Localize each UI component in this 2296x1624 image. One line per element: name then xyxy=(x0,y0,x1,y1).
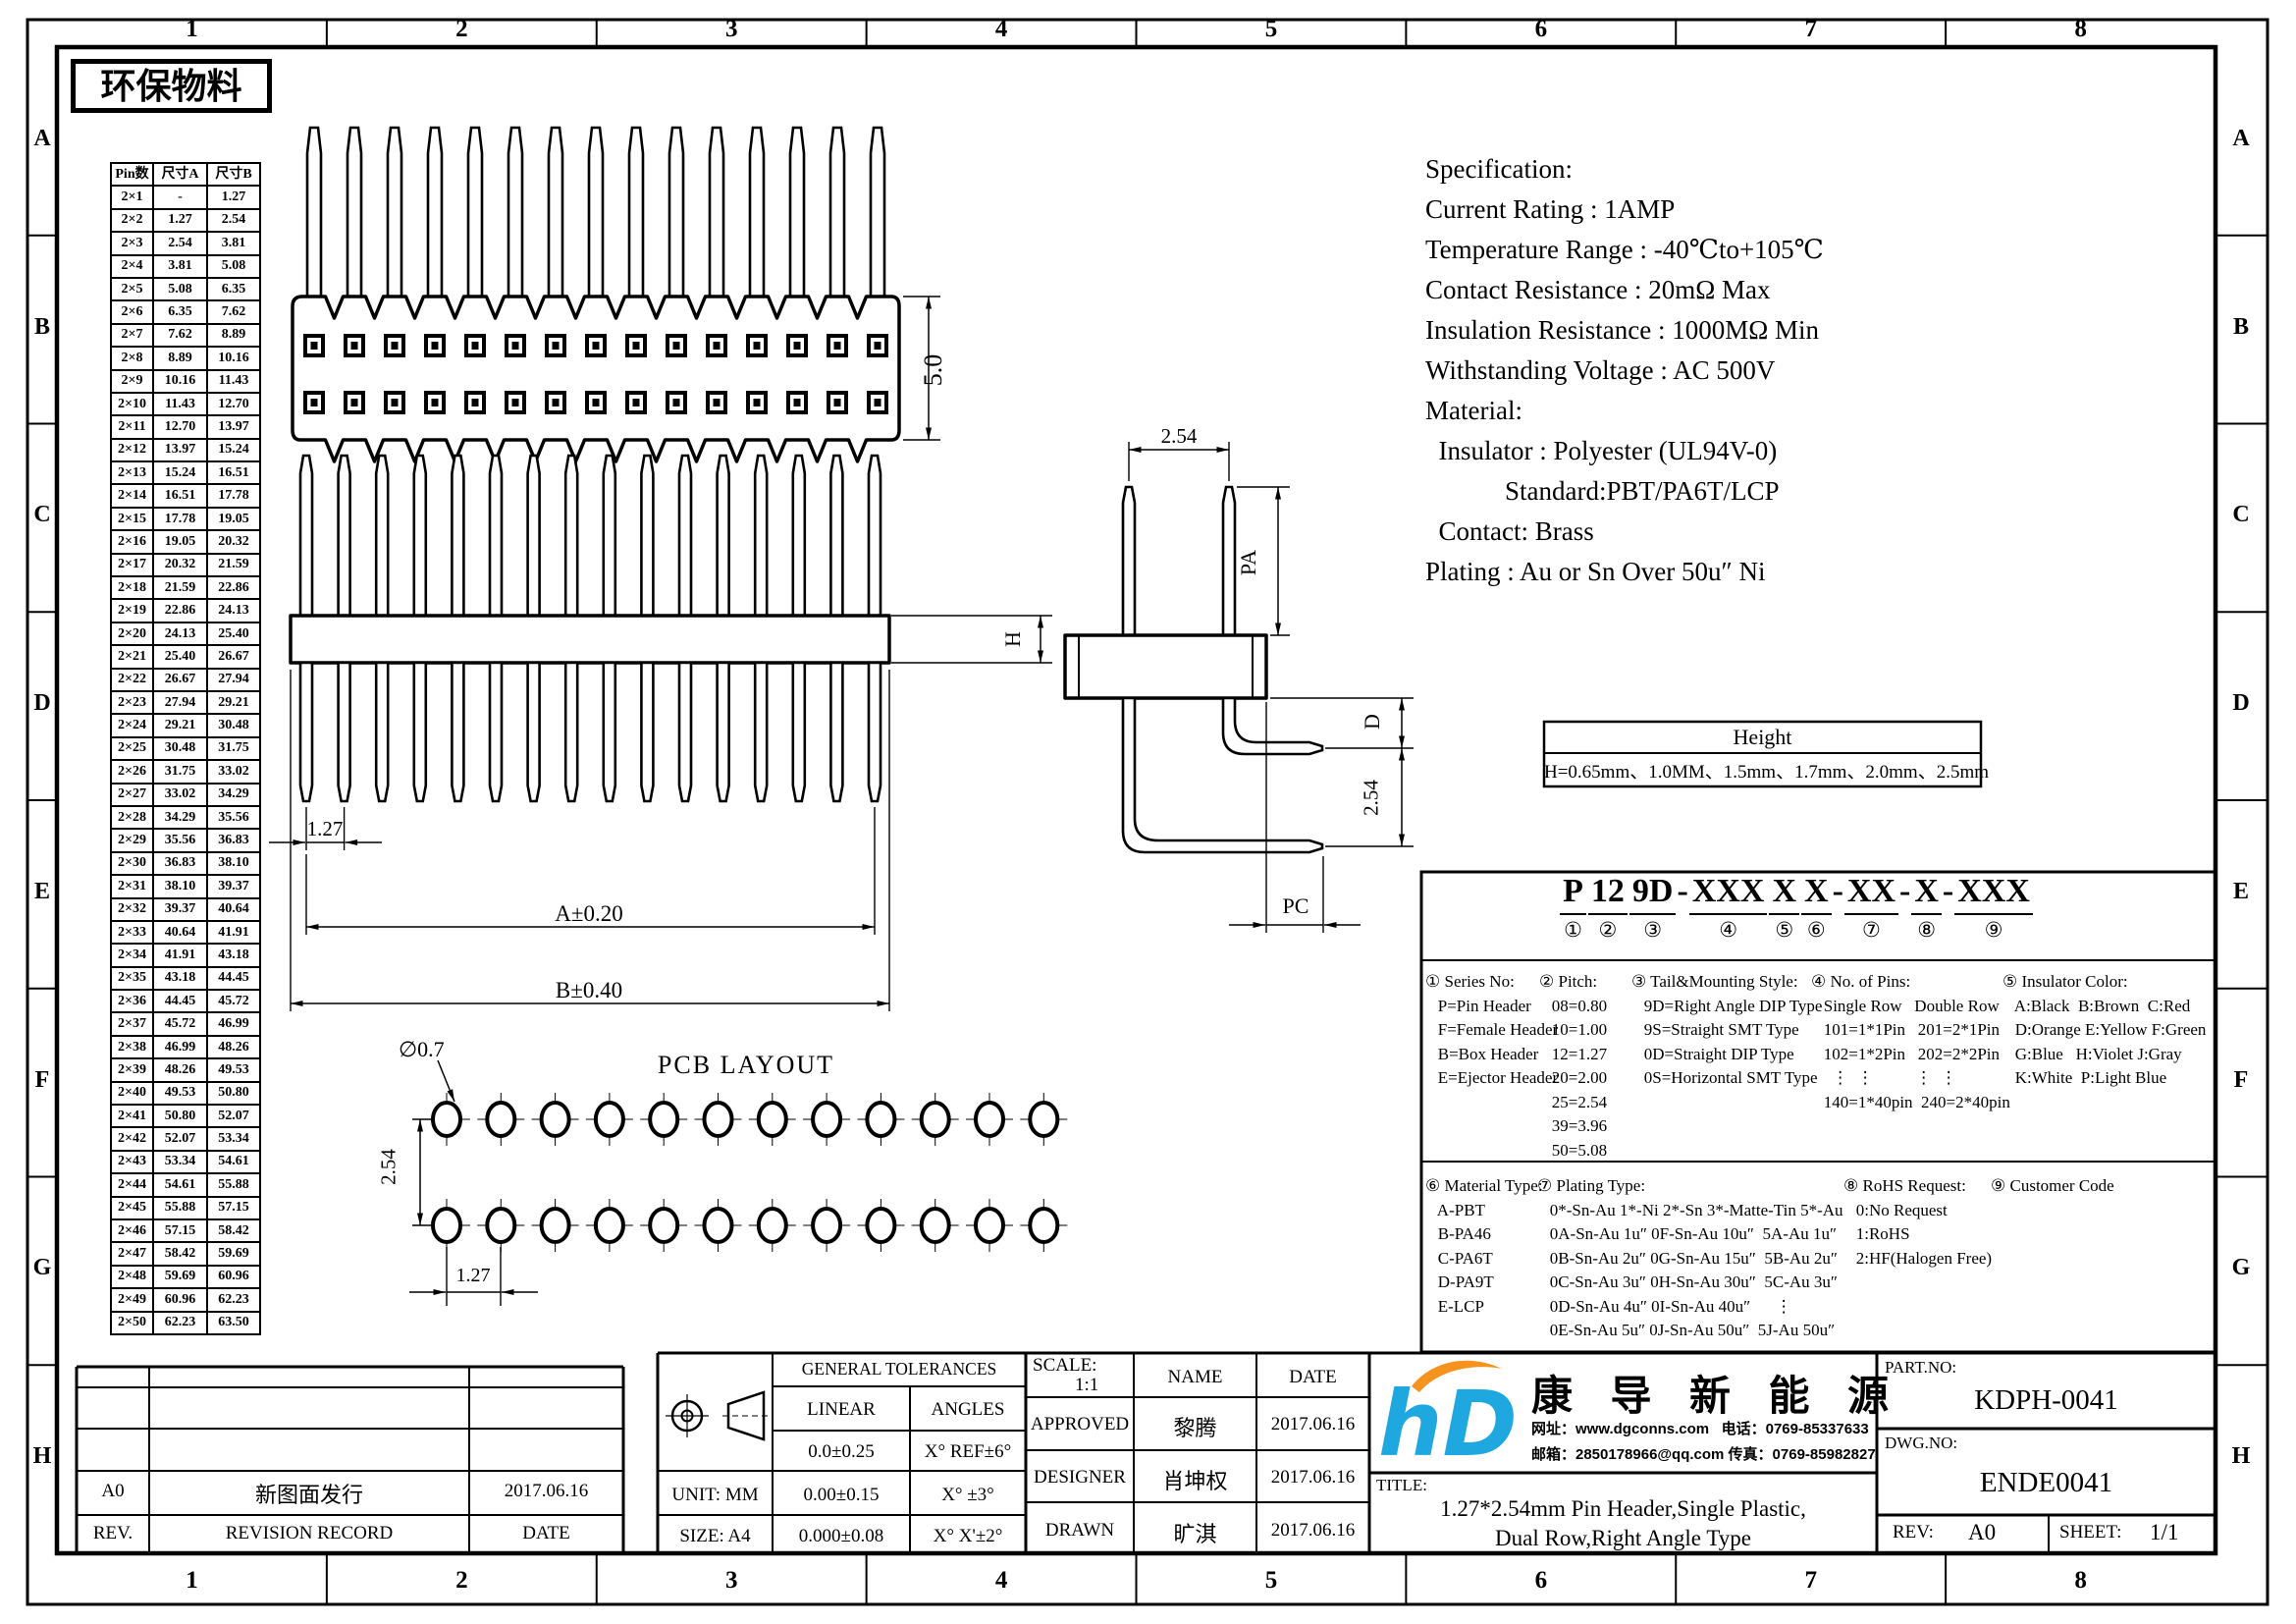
grid-row-label-right: H xyxy=(2220,1443,2262,1470)
angle-tol-3: X° X'±2° xyxy=(910,1526,1026,1547)
pcb-hole xyxy=(650,1103,677,1136)
pin-table-row: 2×4049.5350.80 xyxy=(111,1082,260,1105)
pin-table-cell: 2×45 xyxy=(111,1197,153,1219)
linear-tol-1: 0.0±0.25 xyxy=(773,1441,910,1463)
contact-hole-inner xyxy=(392,399,399,406)
company-contact-line1: 网址：www.dgconns.com 电话：0769-85337633 xyxy=(1531,1418,1869,1438)
part-number-segment: 12② xyxy=(1588,870,1628,942)
pcb-hole xyxy=(759,1103,786,1136)
pin-table-cell: 2×37 xyxy=(111,1012,153,1035)
grid-col-label-top: 1 xyxy=(162,16,221,43)
pin-table-row: 2×4555.8857.15 xyxy=(111,1197,260,1219)
pin-table-row: 2×2327.9429.21 xyxy=(111,691,260,714)
grid-col-label-bottom: 6 xyxy=(1512,1567,1571,1595)
grid-row-label-left: F xyxy=(29,1067,55,1094)
part-number-segment-index: ① xyxy=(1564,918,1582,942)
pin-table-cell: 3.81 xyxy=(207,232,260,254)
pin-table-cell: 2×42 xyxy=(111,1127,153,1150)
dwg-no-label: DWG.NO: xyxy=(1885,1434,1957,1453)
pin-table-cell: 2×34 xyxy=(111,944,153,966)
pcb-hole xyxy=(487,1103,514,1136)
angles-header: ANGLES xyxy=(910,1399,1026,1421)
pin-table-row: 2×2834.2935.56 xyxy=(111,806,260,829)
pin-table-row: 2×1315.2416.51 xyxy=(111,461,260,484)
pin-table-row: 2×3948.2649.53 xyxy=(111,1058,260,1081)
pin-table-cell: 48.26 xyxy=(153,1058,207,1081)
pin-table-cell: 8.89 xyxy=(207,324,260,347)
pin-table-cell: 38.10 xyxy=(153,875,207,897)
grid-row-label-right: G xyxy=(2220,1255,2262,1281)
grid-row-label-right: C xyxy=(2220,502,2262,528)
dim-a-label: A±0.20 xyxy=(520,901,658,927)
pitch-label: 1.27 xyxy=(291,817,359,841)
pin-table-cell: 13.97 xyxy=(153,439,207,461)
pin-table-cell: 41.91 xyxy=(153,944,207,966)
pin-table-header: Pin数 xyxy=(111,163,153,186)
pin-table-header-row: Pin数尺寸A尺寸B xyxy=(111,163,260,186)
contact-hole-inner xyxy=(472,399,479,406)
pin-table-cell: 53.34 xyxy=(207,1127,260,1150)
part-no-value: KDPH-0041 xyxy=(1877,1384,2216,1417)
engineering-drawing-sheet: 环保物料 Pin数尺寸A尺寸B 2×1-1.272×21.272.542×32.… xyxy=(0,0,2296,1624)
front-pin xyxy=(307,128,321,298)
pin-table-cell: 6.35 xyxy=(207,278,260,300)
pin-table-cell: 62.23 xyxy=(207,1288,260,1311)
pin-table-row: 2×1619.0520.32 xyxy=(111,530,260,553)
pin-table-cell: 12.70 xyxy=(207,393,260,415)
pin-table-row: 2×4353.3454.61 xyxy=(111,1151,260,1173)
pin-table-cell: 2×41 xyxy=(111,1105,153,1127)
pin-table-cell: 11.43 xyxy=(207,370,260,393)
company-contact-line2: 邮箱：2850178966@qq.com 传真：0769-85982827 xyxy=(1531,1443,1876,1464)
side-top-pin xyxy=(414,456,426,618)
pin-table-cell: 38.10 xyxy=(207,852,260,875)
contact-hole-inner xyxy=(875,399,881,406)
pin-table-row: 2×2631.7533.02 xyxy=(111,760,260,783)
side-top-pin xyxy=(869,456,881,618)
rev-label: REV: xyxy=(1893,1522,1934,1543)
pin-table-row: 2×1720.3221.59 xyxy=(111,554,260,576)
pin-table-cell: 57.15 xyxy=(153,1219,207,1242)
pin-table-cell: 2×2 xyxy=(111,209,153,232)
pin-table-cell: 35.56 xyxy=(153,829,207,851)
side-bottom-pin xyxy=(528,663,540,801)
pin-table-row: 2×3745.7246.99 xyxy=(111,1012,260,1035)
pcb-hole xyxy=(650,1209,677,1242)
side-bottom-pin xyxy=(755,663,767,801)
part-number-segment-text: XX xyxy=(1844,870,1898,915)
side-view-top-pins xyxy=(300,456,881,618)
pin-table-cell: 2.54 xyxy=(207,209,260,232)
grid-row-label-left: H xyxy=(29,1443,55,1470)
drawing-title-line1: 1.27*2.54mm Pin Header,Single Plastic, xyxy=(1369,1496,1877,1522)
pin-table-cell: 34.29 xyxy=(207,784,260,806)
grid-col-label-top: 5 xyxy=(1242,16,1301,43)
front-view-body xyxy=(293,297,899,461)
pin-table-cell: 2×39 xyxy=(111,1058,153,1081)
sheet-label: SHEET: xyxy=(2059,1522,2121,1543)
grid-row-label-left: G xyxy=(29,1255,55,1281)
pin-table-cell: 17.78 xyxy=(153,508,207,530)
ordering-series: ① Series No: P=Pin Header F=Female Heade… xyxy=(1425,970,1558,1091)
pin-table-cell: 58.42 xyxy=(207,1219,260,1242)
contact-hole-inner xyxy=(714,342,721,350)
pcb-hole xyxy=(433,1209,460,1242)
pin-table-cell: 2×8 xyxy=(111,347,153,369)
angle-right-pin xyxy=(1223,487,1235,635)
pin-table-cell: 2×35 xyxy=(111,967,153,990)
pin-table-header: 尺寸A xyxy=(153,163,207,186)
pin-table-row: 2×3441.9143.18 xyxy=(111,944,260,966)
contact-hole-inner xyxy=(311,342,318,350)
contact-hole-inner xyxy=(673,399,680,406)
grid-col-label-top: 8 xyxy=(2052,16,2110,43)
grid-col-label-bottom: 8 xyxy=(2052,1567,2110,1595)
pin-table-row: 2×3239.3740.64 xyxy=(111,898,260,921)
part-number-segment-text: XXX xyxy=(1689,870,1768,915)
pin-table-row: 2×4657.1558.42 xyxy=(111,1219,260,1242)
pa-label: PA xyxy=(1236,533,1261,592)
pin-table-cell: 16.51 xyxy=(207,461,260,484)
side-bottom-pin xyxy=(339,663,350,801)
side-top-pin xyxy=(679,456,691,618)
grid-row-label-right: F xyxy=(2220,1067,2262,1094)
pcb-hole xyxy=(487,1209,514,1242)
general-tolerances-title: GENERAL TOLERANCES xyxy=(773,1359,1026,1380)
contact-hole-inner xyxy=(432,342,439,350)
pin-table-cell: 2×17 xyxy=(111,554,153,576)
side-bottom-pin xyxy=(679,663,691,801)
part-number-segment-index: ⑥ xyxy=(1807,918,1826,942)
pin-table-cell: 8.89 xyxy=(153,347,207,369)
linear-tol-2: 0.00±0.15 xyxy=(773,1485,910,1506)
row-space-label: 2.54 xyxy=(1360,764,1384,833)
pcb-hole xyxy=(976,1103,1003,1136)
pcb-hole xyxy=(542,1209,569,1242)
pin-table-cell: 54.61 xyxy=(153,1173,207,1196)
pin-table-cell: 2×3 xyxy=(111,232,153,254)
pin-table-row: 2×3543.1844.45 xyxy=(111,967,260,990)
pin-table-row: 2×66.357.62 xyxy=(111,300,260,323)
part-number-segment-index: ③ xyxy=(1643,918,1662,942)
pin-table-row: 2×21.272.54 xyxy=(111,209,260,232)
side-bottom-pin xyxy=(604,663,615,801)
ordering-pin-count: ④ No. of Pins: Single Row Double Row 101… xyxy=(1811,970,2010,1114)
pcb-hole xyxy=(596,1103,623,1136)
part-number-segment-index: ⑧ xyxy=(1917,918,1936,942)
front-pin xyxy=(710,128,723,298)
contact-hole-inner xyxy=(553,342,560,350)
pin-table-cell: 3.81 xyxy=(153,255,207,278)
pin-table-row: 2×32.543.81 xyxy=(111,232,260,254)
side-top-pin xyxy=(604,456,615,618)
pcb-layout-holes xyxy=(423,1093,1067,1252)
grid-row-label-left: C xyxy=(29,502,55,528)
linear-header: LINEAR xyxy=(773,1399,910,1421)
part-number-segment-text: 9D xyxy=(1629,870,1677,915)
side-top-pin xyxy=(641,456,653,618)
pin-table-cell: - xyxy=(153,186,207,208)
pin-table-cell: 29.21 xyxy=(207,691,260,714)
pin-table-cell: 15.24 xyxy=(153,461,207,484)
pin-table-row: 2×2733.0234.29 xyxy=(111,784,260,806)
side-bottom-pin xyxy=(869,663,881,801)
scale-value: 1:1 xyxy=(1075,1375,1098,1396)
designer-date: 2017.06.16 xyxy=(1256,1467,1369,1489)
pin-table-row: 2×2226.6727.94 xyxy=(111,669,260,691)
approved-label: APPROVED xyxy=(1026,1414,1134,1435)
drawn-date: 2017.06.16 xyxy=(1256,1520,1369,1542)
pin-table-cell: 41.91 xyxy=(207,921,260,944)
pin-table-cell: 48.26 xyxy=(207,1036,260,1058)
side-bottom-pin xyxy=(718,663,729,801)
pin-table-cell: 22.86 xyxy=(153,599,207,622)
contact-hole-inner xyxy=(432,399,439,406)
pin-table-cell: 40.64 xyxy=(153,921,207,944)
pcb-hole xyxy=(759,1209,786,1242)
pin-table-cell: 2×40 xyxy=(111,1082,153,1105)
contact-hole-inner xyxy=(875,342,881,350)
pin-table-cell: 2×47 xyxy=(111,1242,153,1265)
part-number-segment-index: ⑦ xyxy=(1862,918,1881,942)
grid-row-label-left: D xyxy=(29,690,55,717)
pin-table-cell: 2×12 xyxy=(111,439,153,461)
pin-table-cell: 40.64 xyxy=(207,898,260,921)
angle-left-pin xyxy=(1123,487,1135,635)
pin-table-cell: 30.48 xyxy=(207,714,260,736)
pcb-row-pitch-label: 2.54 xyxy=(377,1138,401,1197)
pin-table-cell: 2×7 xyxy=(111,324,153,347)
pin-table-cell: 2×25 xyxy=(111,737,153,760)
front-pin xyxy=(428,128,442,298)
side-bottom-pin xyxy=(376,663,388,801)
side-bottom-pin xyxy=(300,663,312,801)
sheet-value: 1/1 xyxy=(2150,1520,2178,1545)
pcb-hole xyxy=(1030,1103,1057,1136)
ordering-customer-code: ⑨ Customer Code xyxy=(1991,1174,2114,1199)
approved-name: 黎腾 xyxy=(1134,1411,1256,1442)
pin-table-row: 2×3644.4545.72 xyxy=(111,990,260,1012)
pin-table-cell: 2×5 xyxy=(111,278,153,300)
ordering-tail-style: ③ Tail&Mounting Style: 9D=Right Angle DI… xyxy=(1631,970,1822,1091)
pin-table-cell: 20.32 xyxy=(207,530,260,553)
part-number-segment-index: ② xyxy=(1598,918,1617,942)
side-bottom-pin xyxy=(414,663,426,801)
pcb-hole xyxy=(433,1103,460,1136)
pin-table-cell: 12.70 xyxy=(153,415,207,438)
unit-label: UNIT: MM xyxy=(658,1485,773,1506)
pin-table-cell: 35.56 xyxy=(207,806,260,829)
d-label: D xyxy=(1360,692,1385,751)
contact-hole-inner xyxy=(351,399,358,406)
pin-table-cell: 2×13 xyxy=(111,461,153,484)
pin-table-cell: 49.53 xyxy=(207,1058,260,1081)
company-logo: hD xyxy=(1372,1357,1529,1469)
ordering-rohs: ⑧ RoHS Request: 0:No Request 1:RoHS 2:HF… xyxy=(1843,1174,1992,1271)
rev-value: A0 xyxy=(1968,1520,1996,1545)
scale-label: SCALE: xyxy=(1033,1355,1096,1377)
revision-date: 2017.06.16 xyxy=(469,1481,623,1502)
pin-table-cell: 15.24 xyxy=(207,439,260,461)
front-pin xyxy=(871,128,884,298)
front-pin xyxy=(468,128,482,298)
grid-col-label-bottom: 1 xyxy=(162,1567,221,1595)
pin-table-cell: 31.75 xyxy=(207,737,260,760)
contact-hole-inner xyxy=(593,399,600,406)
pin-table-row: 2×1213.9715.24 xyxy=(111,439,260,461)
pin-table-cell: 49.53 xyxy=(153,1082,207,1105)
side-top-pin xyxy=(793,456,805,618)
pcb-hole xyxy=(596,1209,623,1242)
top-pitch-label: 2.54 xyxy=(1145,424,1213,449)
side-bottom-pin xyxy=(793,663,805,801)
pin-table-row: 2×4859.6960.96 xyxy=(111,1266,260,1288)
pin-table-cell: 20.32 xyxy=(153,554,207,576)
pin-table-cell: 27.94 xyxy=(153,691,207,714)
pin-table-row: 2×1416.5117.78 xyxy=(111,484,260,507)
pin-table-cell: 2×48 xyxy=(111,1266,153,1288)
pin-table-cell: 5.08 xyxy=(153,278,207,300)
side-top-pin xyxy=(339,456,350,618)
grid-row-label-right: B xyxy=(2220,314,2262,341)
pin-table-cell: 2×36 xyxy=(111,990,153,1012)
pin-table-cell: 2×4 xyxy=(111,255,153,278)
date-column-label: DATE xyxy=(469,1523,623,1544)
pin-table-cell: 16.51 xyxy=(153,484,207,507)
pin-table-cell: 6.35 xyxy=(153,300,207,323)
pin-table-row: 2×1517.7819.05 xyxy=(111,508,260,530)
pin-table-cell: 26.67 xyxy=(153,669,207,691)
pin-table-cell: 2×29 xyxy=(111,829,153,851)
pin-table-cell: 24.13 xyxy=(207,599,260,622)
pin-table-cell: 2×31 xyxy=(111,875,153,897)
pcb-hole xyxy=(922,1209,949,1242)
pin-table-cell: 21.59 xyxy=(207,554,260,576)
grid-row-label-left: A xyxy=(29,126,55,152)
pin-dimension-table: Pin数尺寸A尺寸B 2×1-1.272×21.272.542×32.543.8… xyxy=(110,162,261,1335)
name-header: NAME xyxy=(1134,1367,1256,1388)
company-name: 康 导 新 能 源 xyxy=(1531,1363,1902,1423)
pin-table-cell: 10.16 xyxy=(153,370,207,393)
pin-table-cell: 44.45 xyxy=(207,967,260,990)
part-number-code: P① 12② 9D③-XXX④ X⑤ X⑥-XX⑦-X⑧-XXX⑨ xyxy=(1571,870,2022,942)
approved-date: 2017.06.16 xyxy=(1256,1414,1369,1435)
revision-record-label: REVISION RECORD xyxy=(149,1523,469,1544)
part-number-segment: XXX④ xyxy=(1689,870,1768,942)
pin-table-cell: 25.40 xyxy=(153,645,207,668)
angle-tol-1: X° REF±6° xyxy=(910,1441,1026,1463)
pin-table-row: 2×3036.8338.10 xyxy=(111,852,260,875)
pin-table-row: 2×2530.4831.75 xyxy=(111,737,260,760)
pin-table-row: 2×3340.6441.91 xyxy=(111,921,260,944)
pin-table-cell: 2×11 xyxy=(111,415,153,438)
title-label: TITLE: xyxy=(1376,1476,1427,1495)
side-top-pin xyxy=(755,456,767,618)
part-number-segment-text: X xyxy=(1911,870,1942,915)
pin-table-cell: 2×10 xyxy=(111,393,153,415)
revision-description: 新图面发行 xyxy=(149,1478,469,1509)
grid-row-label-right: D xyxy=(2220,690,2262,717)
pin-table-cell: 44.45 xyxy=(153,990,207,1012)
pin-table-cell: 58.42 xyxy=(153,1242,207,1265)
pin-table-cell: 2×27 xyxy=(111,784,153,806)
part-number-segment: P① xyxy=(1560,870,1586,942)
pin-table-cell: 43.18 xyxy=(153,967,207,990)
pin-table-cell: 13.97 xyxy=(207,415,260,438)
grid-col-label-bottom: 3 xyxy=(702,1567,761,1595)
part-number-separator: - xyxy=(1898,870,1911,913)
pcb-hole xyxy=(705,1209,732,1242)
side-bottom-pin xyxy=(452,663,463,801)
part-number-segment: 9D③ xyxy=(1629,870,1677,942)
pin-table-row: 2×3138.1039.37 xyxy=(111,875,260,897)
part-number-segment: XXX⑨ xyxy=(1954,870,2033,942)
front-height-label: 5.0 xyxy=(919,336,948,405)
pin-table-cell: 60.96 xyxy=(207,1266,260,1288)
height-table-value: H=0.65mm、1.0MM、1.5mm、1.7mm、2.0mm、2.5mm xyxy=(1544,757,1981,784)
pin-table-header: 尺寸B xyxy=(207,163,260,186)
contact-hole-inner xyxy=(392,342,399,350)
pin-table-cell: 2×16 xyxy=(111,530,153,553)
side-top-pin xyxy=(565,456,577,618)
pin-table-cell: 24.13 xyxy=(153,623,207,645)
front-pin xyxy=(549,128,562,298)
contact-hole-inner xyxy=(834,342,841,350)
contact-hole-inner xyxy=(714,399,721,406)
front-pin xyxy=(750,128,764,298)
pin-table-cell: 50.80 xyxy=(153,1105,207,1127)
pin-table-cell: 63.50 xyxy=(207,1312,260,1334)
part-number-segment-index: ⑤ xyxy=(1775,918,1793,942)
contact-hole-inner xyxy=(673,342,680,350)
contact-hole-inner xyxy=(311,399,318,406)
pin-table-cell: 45.72 xyxy=(153,1012,207,1035)
drawing-title-line2: Dual Row,Right Angle Type xyxy=(1369,1526,1877,1551)
contact-hole-inner xyxy=(633,342,640,350)
pin-table-cell: 2×24 xyxy=(111,714,153,736)
side-top-pin xyxy=(718,456,729,618)
part-number-segment: XX⑦ xyxy=(1844,870,1898,942)
linear-tol-3: 0.000±0.08 xyxy=(773,1526,910,1547)
side-bottom-pin xyxy=(490,663,502,801)
pin-table-cell: 5.08 xyxy=(207,255,260,278)
rev-column-label: REV. xyxy=(77,1523,149,1544)
pc-label: PC xyxy=(1261,893,1330,919)
part-number-separator: - xyxy=(1676,870,1688,913)
pin-table-row: 2×910.1611.43 xyxy=(111,370,260,393)
pin-table-row: 2×1112.7013.97 xyxy=(111,415,260,438)
front-pin xyxy=(388,128,401,298)
pin-table-cell: 60.96 xyxy=(153,1288,207,1311)
part-no-label: PART.NO: xyxy=(1885,1358,1956,1378)
pin-table-cell: 52.07 xyxy=(153,1127,207,1150)
grid-col-label-top: 2 xyxy=(432,16,491,43)
contact-hole-inner xyxy=(754,342,761,350)
pin-table-row: 2×5062.2363.50 xyxy=(111,1312,260,1334)
pin-table-row: 2×4252.0753.34 xyxy=(111,1127,260,1150)
contact-hole-inner xyxy=(834,399,841,406)
grid-col-label-top: 7 xyxy=(1782,16,1841,43)
pin-table-cell: 2×19 xyxy=(111,599,153,622)
pin-table-cell: 21.59 xyxy=(153,576,207,599)
grid-col-label-bottom: 7 xyxy=(1782,1567,1841,1595)
front-pin xyxy=(508,128,522,298)
drawn-label: DRAWN xyxy=(1026,1520,1134,1542)
pin-table-cell: 36.83 xyxy=(207,829,260,851)
pin-table-cell: 34.29 xyxy=(153,806,207,829)
pin-table-cell: 27.94 xyxy=(207,669,260,691)
pin-table-cell: 2×18 xyxy=(111,576,153,599)
